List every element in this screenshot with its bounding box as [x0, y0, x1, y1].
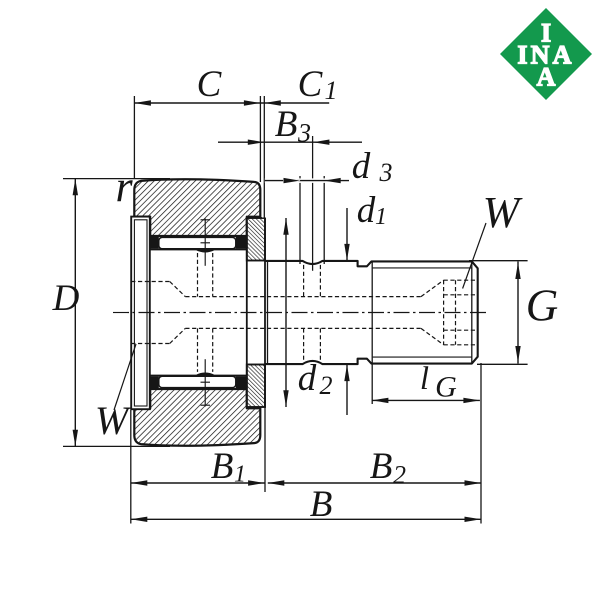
svg-text:1: 1: [325, 76, 338, 105]
svg-text:1: 1: [234, 462, 246, 488]
svg-text:B: B: [370, 446, 393, 487]
svg-text:d: d: [357, 190, 376, 231]
svg-text:G: G: [435, 371, 457, 404]
svg-text:3: 3: [379, 158, 393, 187]
svg-text:A: A: [537, 63, 556, 92]
svg-text:D: D: [52, 278, 80, 319]
svg-text:C: C: [298, 64, 324, 105]
svg-text:r: r: [115, 162, 133, 211]
svg-text:C: C: [197, 64, 223, 105]
svg-text:3: 3: [297, 119, 311, 148]
svg-text:G: G: [526, 281, 559, 331]
svg-text:2: 2: [393, 461, 406, 490]
svg-text:B: B: [310, 484, 333, 525]
svg-text:l: l: [420, 361, 429, 397]
svg-text:W: W: [95, 398, 132, 443]
svg-text:d: d: [352, 146, 371, 187]
svg-text:d: d: [298, 358, 317, 399]
svg-text:2: 2: [320, 371, 333, 400]
svg-text:W: W: [483, 188, 523, 237]
svg-text:B: B: [211, 446, 234, 487]
svg-text:B: B: [275, 104, 298, 145]
svg-text:1: 1: [375, 204, 387, 230]
